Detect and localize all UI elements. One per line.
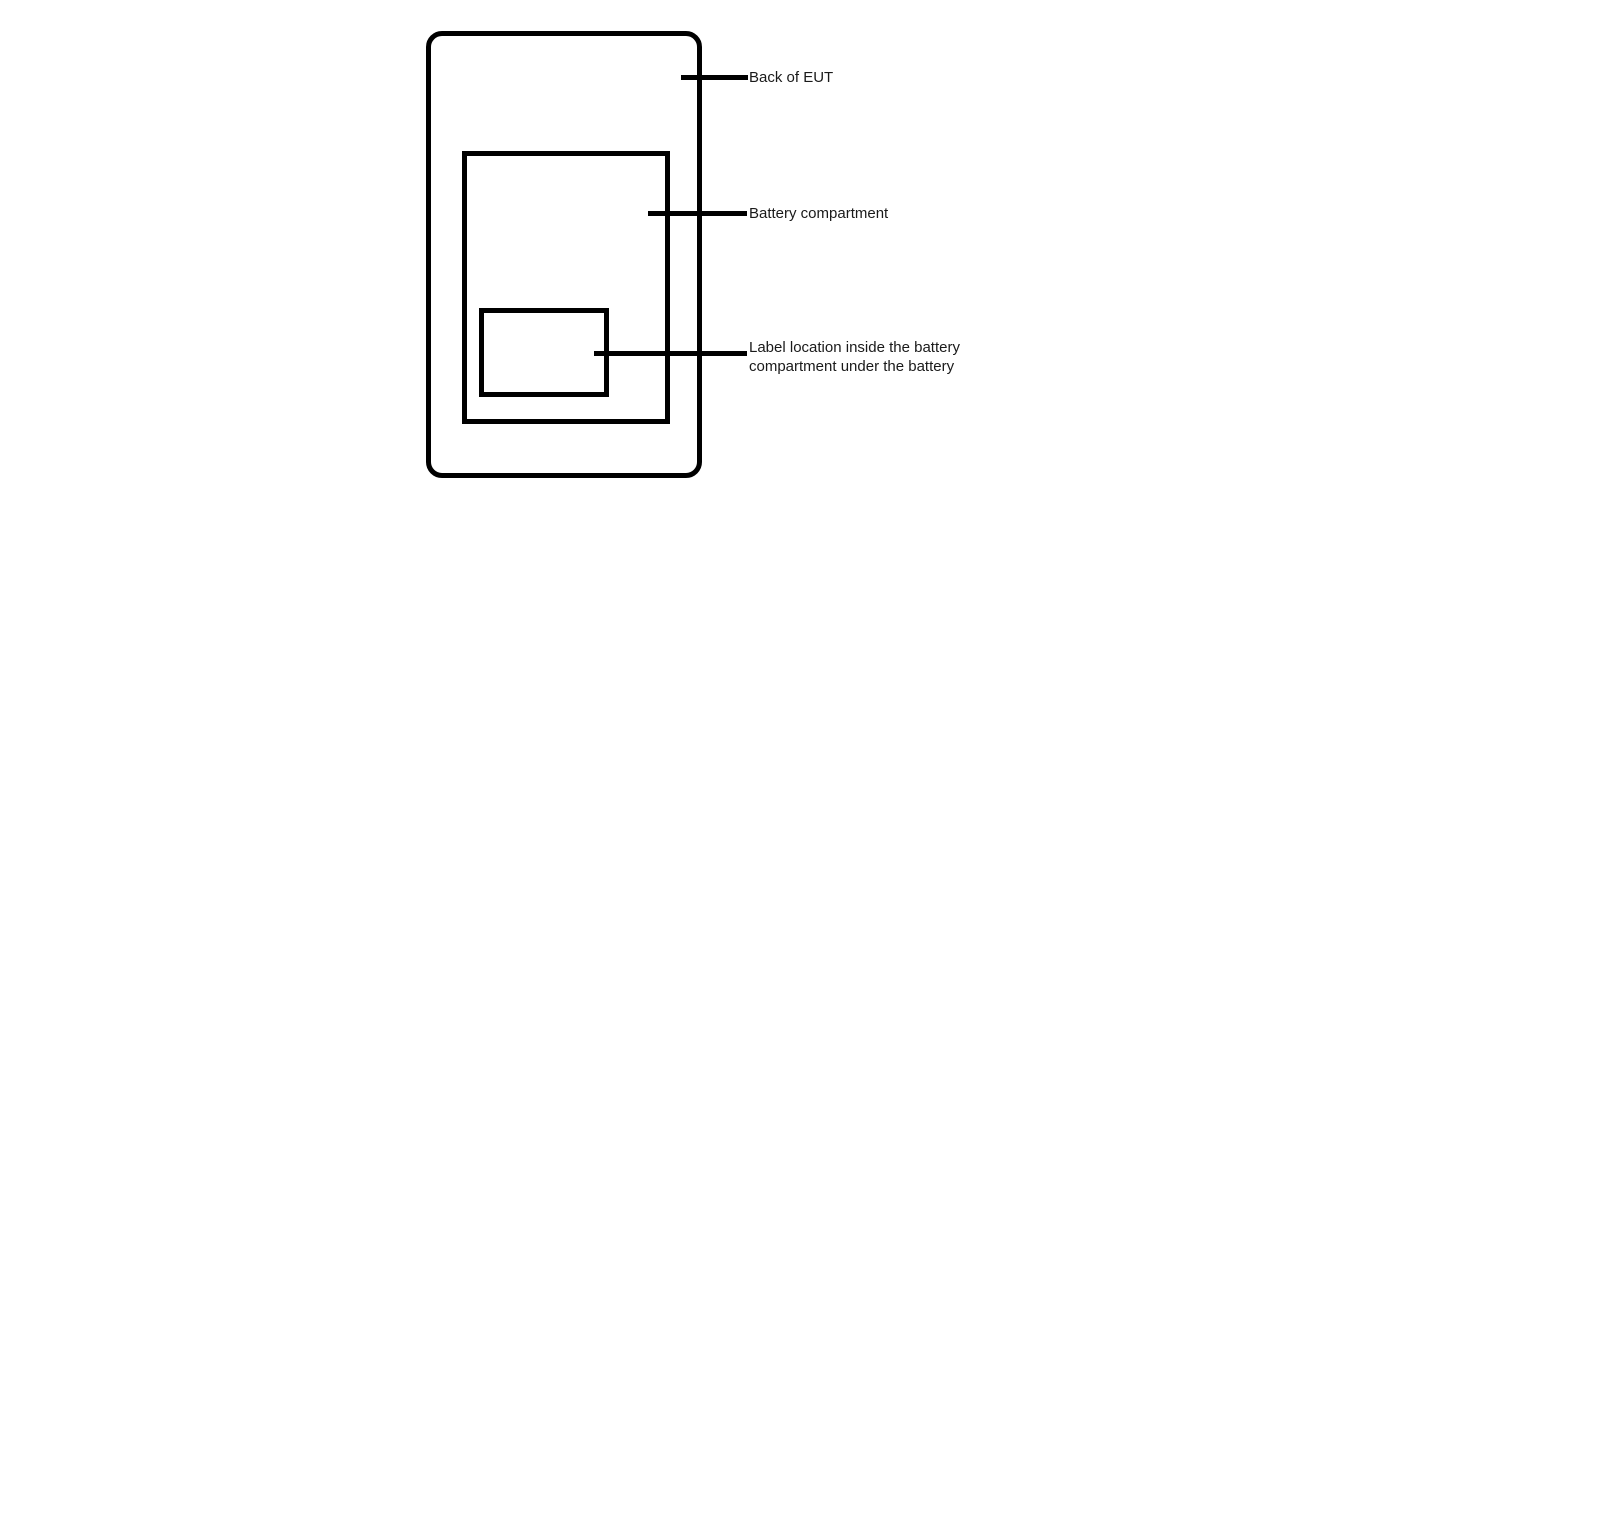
back-of-eut-leader-line [681,75,748,80]
label-location-leader-line [594,351,747,356]
battery-compartment-label: Battery compartment [749,204,888,223]
label-location-label-line1: Label location inside the battery [749,338,960,357]
label-location-rect [479,308,609,397]
label-location-label: Label location inside the battery compar… [749,338,960,376]
back-of-eut-label: Back of EUT [749,68,833,87]
diagram-canvas: Back of EUT Battery compartment Label lo… [0,0,1599,1518]
battery-compartment-leader-line [648,211,747,216]
label-location-label-line2: compartment under the battery [749,357,960,376]
